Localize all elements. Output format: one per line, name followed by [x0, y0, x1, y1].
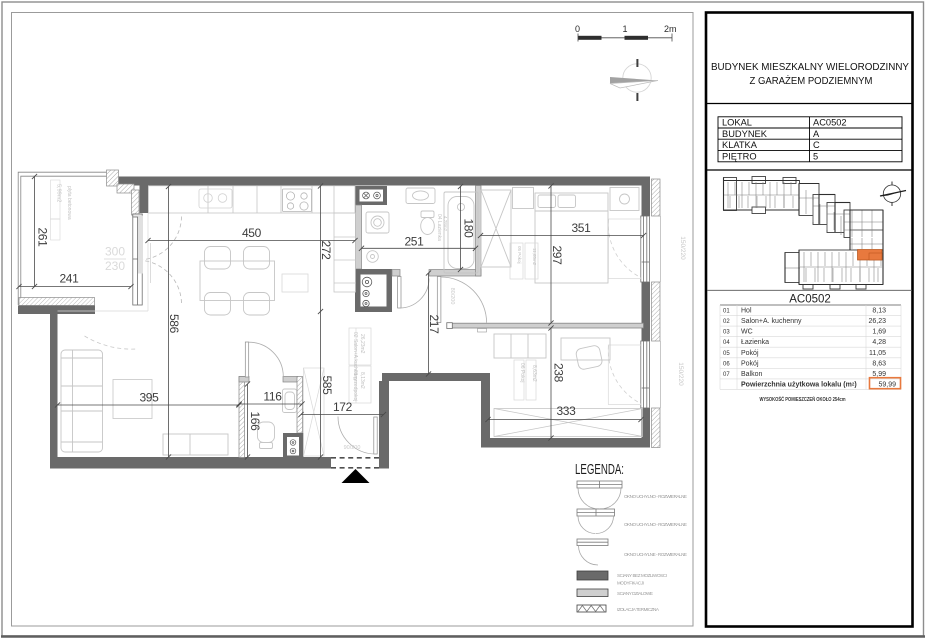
svg-text:05 Pokoj: 05 Pokoj [517, 246, 522, 264]
svg-text:Z GARAŻEM PODZIEMNYM: Z GARAŻEM PODZIEMNYM [750, 74, 873, 87]
svg-text:01 przedpokoj: 01 przedpokoj [352, 370, 358, 401]
svg-text:90/200: 90/200 [344, 445, 361, 451]
svg-text:SCIANY DZIALOWE: SCIANY DZIALOWE [617, 591, 653, 596]
svg-text:Łazienka: Łazienka [741, 339, 769, 346]
svg-text:351: 351 [571, 221, 591, 235]
svg-text:Pokój: Pokój [741, 360, 759, 367]
svg-text:166: 166 [248, 411, 262, 431]
svg-text:8,63: 8,63 [872, 360, 886, 367]
svg-text:172: 172 [333, 400, 353, 414]
svg-text:2m: 2m [664, 24, 677, 34]
svg-text:IZOLACJA TERMICZNA: IZOLACJA TERMICZNA [617, 607, 660, 612]
svg-text:116: 116 [263, 390, 282, 404]
svg-text:150/220: 150/220 [679, 236, 686, 260]
svg-text:KLATKA: KLATKA [722, 140, 758, 150]
svg-text:Balkon: Balkon [741, 371, 763, 378]
svg-text:LOKAL: LOKAL [722, 118, 752, 128]
svg-text:07: 07 [723, 372, 730, 378]
svg-text:04 Lazienka: 04 Lazienka [436, 214, 442, 241]
svg-text:11,05: 11,05 [869, 350, 886, 357]
svg-text:333: 333 [556, 404, 576, 418]
svg-text:06 Pokoj: 06 Pokoj [519, 363, 525, 382]
svg-text:395: 395 [139, 391, 159, 405]
svg-text:C: C [813, 140, 820, 150]
svg-text:586: 586 [167, 314, 181, 334]
svg-text:SCIANY BEZ MOZLIWOSCI: SCIANY BEZ MOZLIWOSCI [617, 573, 667, 578]
svg-text:11,05m2: 11,05m2 [532, 248, 537, 266]
svg-text:8,63m2: 8,63m2 [531, 365, 537, 382]
svg-text:261: 261 [35, 227, 49, 247]
svg-text:5: 5 [813, 151, 818, 161]
svg-text:AC0502: AC0502 [789, 294, 831, 306]
svg-text:1,69: 1,69 [872, 329, 886, 336]
svg-text:450: 450 [242, 226, 262, 240]
svg-text:A: A [813, 129, 820, 139]
svg-text:5,99m2: 5,99m2 [56, 184, 62, 202]
svg-text:Hol: Hol [741, 308, 752, 315]
svg-text:0: 0 [575, 24, 580, 34]
svg-text:WC: WC [741, 329, 753, 336]
svg-text:Pokój: Pokój [741, 350, 759, 357]
svg-text:297: 297 [550, 245, 564, 265]
svg-text:Powierzchnia użytkowa lokalu (: Powierzchnia użytkowa lokalu (m2) [741, 381, 857, 389]
svg-text:Salon+A. kuchenny: Salon+A. kuchenny [741, 318, 802, 325]
svg-text:80/200: 80/200 [449, 288, 455, 305]
svg-text:5,99: 5,99 [872, 371, 886, 378]
svg-text:26,23: 26,23 [868, 318, 886, 325]
svg-text:OKNO UCHYLNO - ROZWIERALNE: OKNO UCHYLNO - ROZWIERALNE [624, 494, 687, 499]
svg-text:06: 06 [723, 361, 730, 367]
svg-text:LEGENDA:: LEGENDA: [575, 462, 624, 478]
svg-text:8,13: 8,13 [872, 308, 886, 315]
svg-text:BUDYNEK: BUDYNEK [722, 129, 768, 139]
svg-text:WYSOKOŚĆ POMIESZCZEŃ OKOŁO: WYSOKOŚĆ POMIESZCZEŃ OKOŁO 254cm [760, 395, 846, 403]
svg-text:1: 1 [623, 24, 628, 34]
svg-text:272: 272 [319, 240, 333, 260]
svg-text:OKNO UCHYLNO - ROZWIERALNE: OKNO UCHYLNO - ROZWIERALNE [624, 522, 687, 527]
svg-text:plyta betonowa: plyta betonowa [66, 186, 72, 220]
svg-text:02: 02 [723, 319, 730, 325]
svg-text:03: 03 [723, 330, 730, 336]
svg-text:OKNO UCHYLNE - ROZWIERALNE: OKNO UCHYLNE - ROZWIERALNE [624, 552, 687, 557]
svg-text:300: 300 [105, 245, 125, 259]
svg-text:26,23m2: 26,23m2 [359, 334, 365, 354]
svg-text:4,28m2: 4,28m2 [443, 216, 448, 232]
svg-text:01: 01 [723, 309, 730, 315]
svg-text:8,13m2: 8,13m2 [359, 372, 365, 389]
svg-text:BUDYNEK MIESZKALNY WIELORODZ: BUDYNEK MIESZKALNY WIELORODZINNY [711, 61, 909, 73]
svg-text:241: 241 [59, 272, 79, 286]
svg-text:4,28: 4,28 [872, 339, 886, 346]
svg-text:585: 585 [320, 375, 334, 395]
svg-text:238: 238 [552, 363, 566, 383]
svg-text:05: 05 [723, 351, 730, 357]
svg-text:59,99: 59,99 [878, 382, 896, 389]
svg-text:150/220: 150/220 [677, 362, 684, 386]
svg-text:04: 04 [723, 340, 730, 346]
svg-text:230: 230 [105, 259, 125, 273]
svg-text:MODYFIKACJI: MODYFIKACJI [617, 581, 644, 586]
svg-text:251: 251 [404, 234, 424, 248]
svg-text:217: 217 [427, 314, 441, 334]
svg-text:180: 180 [462, 218, 476, 238]
svg-text:PIĘTRO: PIĘTRO [722, 151, 757, 161]
svg-text:AC0502: AC0502 [813, 118, 847, 128]
